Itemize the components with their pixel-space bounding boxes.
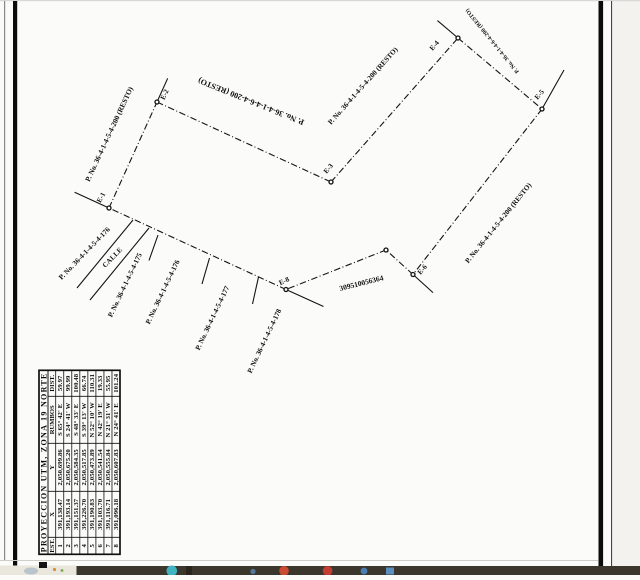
svg-text:DIST.: DIST. (49, 375, 56, 392)
svg-text:101.24: 101.24 (113, 373, 120, 393)
svg-text:2,050,541.54: 2,050,541.54 (97, 449, 104, 486)
svg-text:Y: Y (49, 465, 56, 470)
svg-text:59.97: 59.97 (57, 375, 64, 391)
svg-text:RUMBOS: RUMBOS (49, 405, 56, 434)
svg-text:N 52° 10' W: N 52° 10' W (89, 402, 96, 438)
svg-text:X: X (49, 512, 56, 517)
svg-text:N 21° 31' W: N 21° 31' W (105, 402, 112, 438)
svg-text:S 65° 42' E: S 65° 42' E (57, 403, 64, 436)
svg-text:2,050,473.89: 2,050,473.89 (89, 449, 96, 486)
svg-text:2,050,699.86: 2,050,699.86 (57, 449, 64, 486)
svg-text:2: 2 (65, 544, 72, 548)
svg-text:391,103.70: 391,103.70 (97, 498, 104, 530)
svg-text:S 48° 33' E: S 48° 33' E (73, 403, 80, 436)
svg-text:391,151.37: 391,151.37 (73, 498, 80, 530)
svg-text:391,138.47: 391,138.47 (57, 498, 64, 530)
svg-text:N 24° 41' E: N 24° 41' E (113, 403, 120, 437)
svg-text:5: 5 (89, 544, 96, 548)
svg-text:19.33: 19.33 (97, 375, 104, 391)
svg-text:8: 8 (113, 544, 120, 548)
svg-text:391,116.71: 391,116.71 (105, 499, 112, 530)
svg-text:2,050,675.20: 2,050,675.20 (65, 449, 72, 486)
svg-text:2,050,607.83: 2,050,607.83 (113, 449, 120, 486)
svg-text:3: 3 (73, 544, 80, 548)
svg-text:4: 4 (81, 544, 88, 548)
svg-text:99.99: 99.99 (65, 375, 72, 391)
svg-text:1: 1 (57, 544, 64, 547)
svg-text:N 42° 19' E: N 42° 19' E (97, 403, 104, 437)
svg-text:391,226.70: 391,226.70 (81, 498, 88, 530)
svg-text:55.95: 55.95 (105, 375, 112, 391)
svg-text:100.48: 100.48 (73, 373, 80, 393)
svg-text:EST.: EST. (49, 539, 56, 553)
svg-text:S 39° 13' W: S 39° 13' W (81, 402, 88, 437)
svg-text:391,096.18: 391,096.18 (113, 498, 120, 530)
svg-text:110.31: 110.31 (89, 374, 96, 393)
svg-text:S 24° 41' W: S 24° 41' W (65, 402, 72, 437)
svg-text:2,050,555.84: 2,050,555.84 (105, 449, 112, 486)
svg-text:6: 6 (97, 544, 104, 548)
svg-text:2,050,517.85: 2,050,517.85 (81, 449, 88, 486)
svg-text:391,193.14: 391,193.14 (65, 498, 72, 530)
svg-text:2,050,584.35: 2,050,584.35 (73, 449, 80, 486)
svg-text:391,190.83: 391,190.83 (89, 498, 96, 530)
svg-text:PROYECCION UTM, ZONA 19 NORTE: PROYECCION UTM, ZONA 19 NORTE (40, 372, 49, 552)
svg-text:66.74: 66.74 (81, 375, 88, 391)
svg-text:7: 7 (105, 544, 112, 548)
